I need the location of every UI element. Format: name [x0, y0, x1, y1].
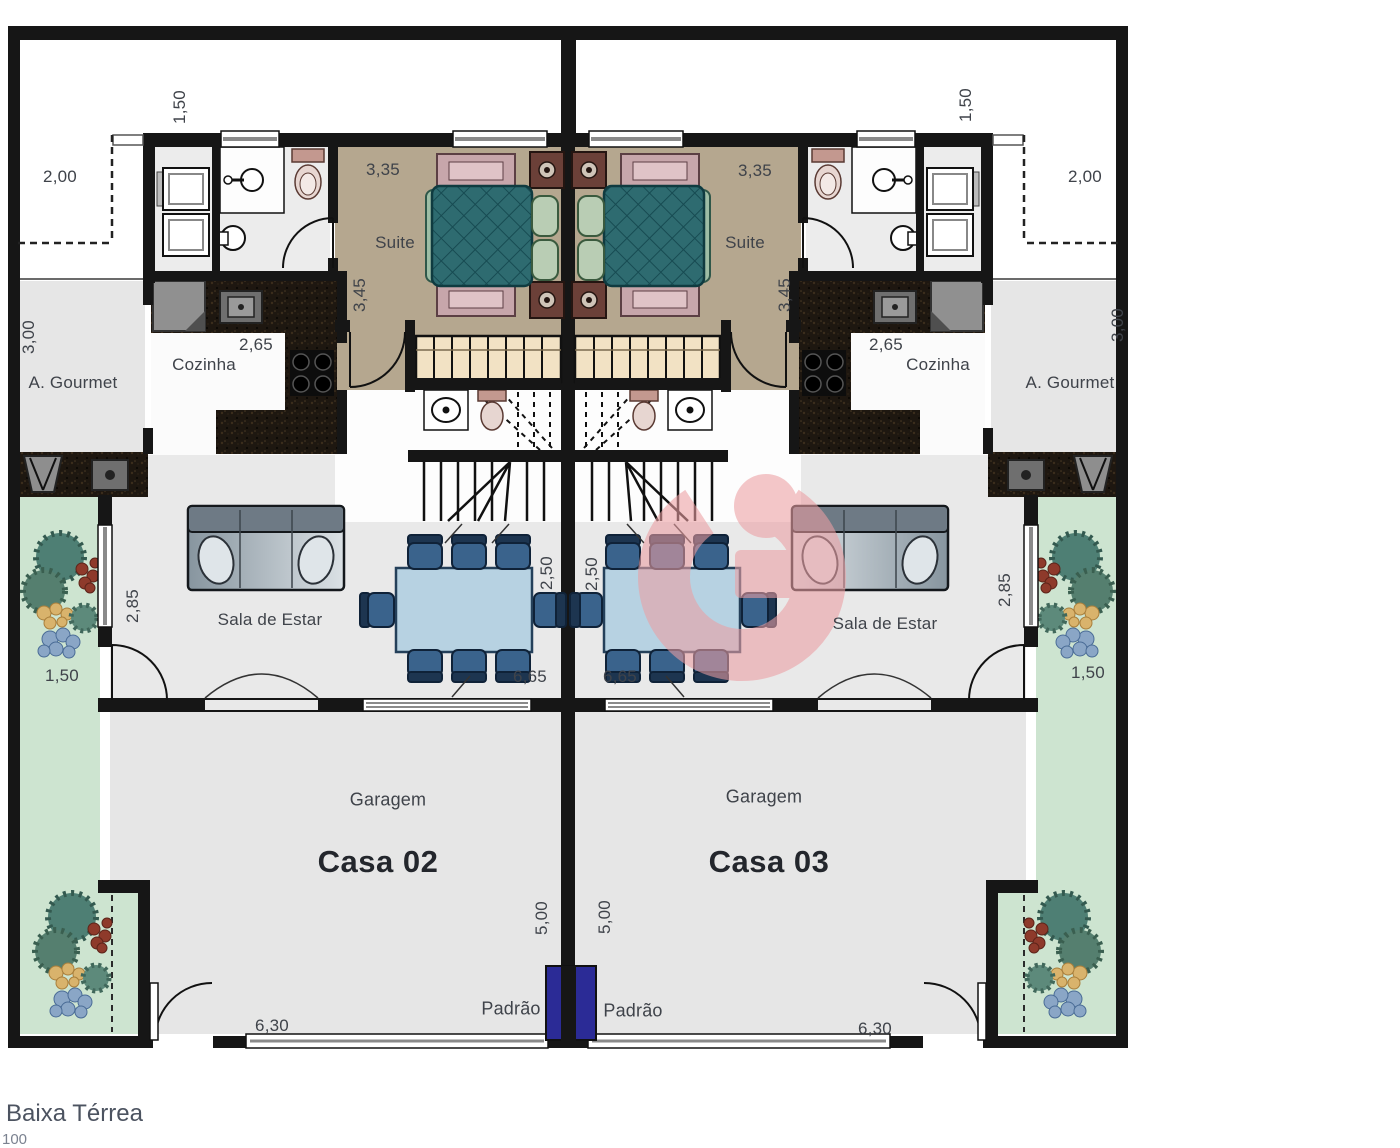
casa02-dim-suite-width: 3,35 — [366, 160, 400, 180]
padrao-utility-box — [546, 966, 596, 1048]
casa03-room-kitchen: Cozinha — [906, 355, 970, 375]
casa02-label-padrao: Padrão — [481, 999, 540, 1020]
casa02-dim-corner-setback: 2,00 — [43, 167, 77, 187]
casa03-room-suite: Suite — [725, 233, 765, 253]
casa02-title: Casa 02 — [318, 844, 439, 880]
floor-plan-svg — [0, 0, 1400, 1141]
casa03-dim-suite-depth: 3,45 — [775, 278, 795, 312]
casa03-label-padrao: Padrão — [603, 1001, 662, 1022]
casa03-dim-garage-width: 6,30 — [858, 1019, 892, 1039]
casa03-dim-garden-width: 1,50 — [1071, 663, 1105, 683]
floor-plan-page: 1,50 2,00 3,00 A. Gourmet 2,65 Cozinha 3… — [0, 0, 1400, 1141]
casa02-dim-living-window: 2,85 — [123, 589, 143, 623]
casa02-room-suite: Suite — [375, 233, 415, 253]
casa03-dim-front-terrace: 1,50 — [956, 88, 976, 122]
casa03-dim-suite-width: 3,35 — [738, 161, 772, 181]
casa03-room-garage: Garagem — [726, 787, 802, 808]
casa02-dim-kitchen-width: 2,65 — [239, 335, 273, 355]
casa03-dim-living-window: 2,85 — [995, 573, 1015, 607]
casa02-dim-front-terrace: 1,50 — [170, 90, 190, 124]
plan-scale-fragment: 100 — [2, 1131, 27, 1148]
casa02-room-garage: Garagem — [350, 790, 426, 811]
casa02-dim-garage-width: 6,30 — [255, 1016, 289, 1036]
casa02-dim-gourmet-depth: 3,00 — [19, 320, 39, 354]
plan-name-label: Baixa Térrea — [6, 1100, 143, 1128]
casa03-dim-kitchen-width: 2,65 — [869, 335, 903, 355]
casa03-room-gourmet: A. Gourmet — [1026, 373, 1115, 393]
casa03-dim-dining-depth: 2,50 — [582, 557, 602, 591]
casa02-geometry — [8, 26, 566, 1048]
casa02-dim-garage-depth: 5,00 — [532, 901, 552, 935]
casa02-dim-garden-width: 1,50 — [45, 666, 79, 686]
casa03-room-living: Sala de Estar — [833, 614, 938, 634]
casa02-dim-suite-depth: 3,45 — [350, 278, 370, 312]
casa02-dim-dining-depth: 2,50 — [537, 556, 557, 590]
casa02-room-living: Sala de Estar — [218, 610, 323, 630]
casa03-dim-corner-setback: 2,00 — [1068, 167, 1102, 187]
casa02-dim-living-width: 6,65 — [513, 667, 547, 687]
casa03-dim-living-width: 6,65 — [603, 667, 637, 687]
casa03-dim-garage-depth: 5,00 — [595, 900, 615, 934]
casa02-room-gourmet: A. Gourmet — [29, 373, 118, 393]
casa03-title: Casa 03 — [709, 844, 830, 880]
casa02-room-kitchen: Cozinha — [172, 355, 236, 375]
casa03-dim-gourmet-depth: 3,00 — [1108, 308, 1128, 342]
